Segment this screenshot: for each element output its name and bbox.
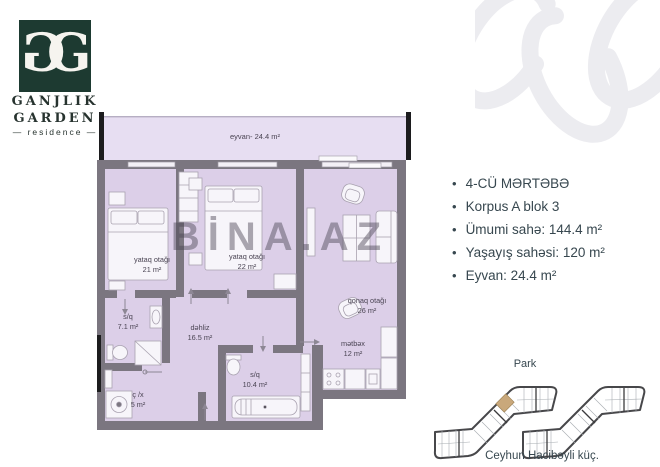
- street-label: Ceyhun Hacibəyli küç.: [485, 450, 599, 462]
- logo-name-line2: GARDEN: [8, 111, 102, 126]
- window-icon: [97, 335, 101, 392]
- list-item-total-area: •Ümumi sahə: 144.4 m²: [452, 218, 605, 241]
- room-name: dəhliz: [190, 323, 209, 332]
- room-area: 22 m²: [238, 262, 257, 271]
- room-area: 10.4 m²: [243, 380, 268, 389]
- room-area: 7.1 m²: [118, 322, 139, 331]
- cabinet-icon: [301, 354, 310, 411]
- swirl-shape: [577, 0, 660, 116]
- room-area: 12 m²: [344, 349, 363, 358]
- site-plan-map: Park Ceyhun Hacibəyli küç.: [430, 354, 660, 467]
- room-name: s/q: [123, 312, 133, 321]
- background-swirl-decoration: [475, 0, 660, 150]
- room-area: 21 m²: [143, 265, 162, 274]
- ganjlik-garden-logo: G G GANJLIK GARDEN — residence —: [8, 20, 102, 137]
- room-name: yataq otağı: [134, 255, 170, 264]
- swirl-shape: [511, 1, 638, 150]
- balcony-side-wall: [99, 112, 104, 160]
- window-icon: [128, 162, 175, 167]
- list-item-balcony-area: •Eyvan: 24.4 m²: [452, 264, 605, 287]
- kitchen-cabinet-icon: [381, 327, 397, 357]
- bullet-icon: •: [452, 195, 457, 218]
- apartment-details-list: •4-CÜ MƏRTƏBƏ •Korpus A blok 3 •Ümumi sa…: [452, 172, 605, 287]
- logo-monogram-icon: G G: [19, 20, 91, 92]
- nightstand-icon: [189, 178, 202, 190]
- sliding-door-icon: [349, 163, 381, 168]
- pillow-icon: [138, 211, 164, 224]
- logo-tagline: — residence —: [8, 127, 102, 137]
- list-item-living-area: •Yaşayış sahəsi: 120 m²: [452, 241, 605, 264]
- pillow-icon: [111, 211, 137, 224]
- kitchen-cabinet-icon: [381, 358, 397, 389]
- bench-icon: [109, 281, 125, 290]
- bullet-icon: •: [452, 172, 457, 195]
- bullet-icon: •: [452, 218, 457, 241]
- park-label: Park: [514, 358, 537, 370]
- monogram-g: G: [47, 28, 91, 80]
- balcony-side-wall: [406, 112, 411, 160]
- dresser-icon: [274, 274, 296, 289]
- nightstand-icon: [109, 192, 125, 205]
- room-name: s/q: [250, 370, 260, 379]
- counter-icon: [345, 369, 365, 389]
- floor-plan: eyvan- 24.4 m²: [95, 108, 432, 440]
- room-area: 16.5 m²: [188, 333, 213, 342]
- shelf-icon: [105, 370, 112, 388]
- pillow-icon: [208, 189, 233, 202]
- room-area: 26 m²: [358, 306, 377, 315]
- sliding-door-icon: [319, 156, 357, 161]
- balcony-label: eyvan- 24.4 m²: [230, 132, 281, 141]
- window-icon: [218, 162, 277, 167]
- logo-name-line1: GANJLIK: [8, 94, 102, 109]
- room-area: 5 m²: [131, 400, 146, 409]
- list-item-floor: •4-CÜ MƏRTƏBƏ: [452, 172, 605, 195]
- room-name: mətbəx: [341, 339, 365, 348]
- room-name: ç /x: [132, 390, 144, 399]
- room-name: qonaq otağı: [348, 296, 387, 305]
- balcony-room: eyvan- 24.4 m²: [99, 112, 411, 160]
- bullet-icon: •: [452, 241, 457, 264]
- pillow-icon: [234, 189, 259, 202]
- toilet-icon: [107, 345, 113, 360]
- stove-icon: [323, 369, 344, 389]
- list-item-block: •Korpus A blok 3: [452, 195, 605, 218]
- watermark-text: BİNA.AZ: [171, 215, 389, 259]
- bullet-icon: •: [452, 264, 457, 287]
